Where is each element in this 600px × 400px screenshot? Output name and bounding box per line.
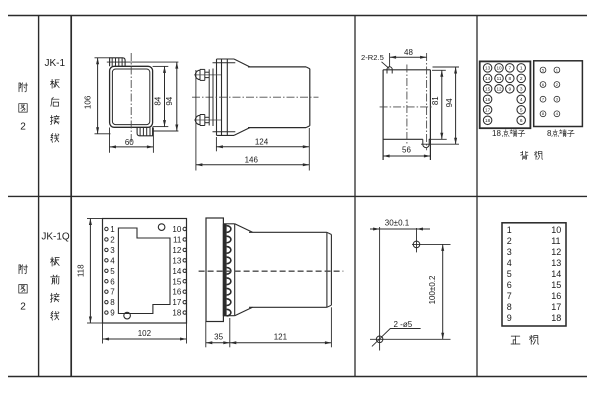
svg-text:18: 18 bbox=[485, 118, 491, 123]
svg-text:JK-1Q: JK-1Q bbox=[41, 231, 70, 242]
svg-text:8: 8 bbox=[547, 129, 552, 138]
svg-text:146: 146 bbox=[245, 156, 259, 165]
svg-text:94: 94 bbox=[445, 98, 454, 107]
svg-text:2: 2 bbox=[20, 121, 26, 132]
svg-text:2: 2 bbox=[110, 235, 115, 244]
svg-text:12: 12 bbox=[551, 247, 561, 257]
svg-text:18: 18 bbox=[492, 129, 501, 138]
svg-text:7: 7 bbox=[508, 66, 511, 72]
svg-text:18: 18 bbox=[172, 309, 181, 318]
svg-text:JK-1: JK-1 bbox=[45, 58, 66, 69]
svg-text:3: 3 bbox=[110, 246, 115, 255]
svg-text:5: 5 bbox=[110, 267, 115, 276]
svg-text:4: 4 bbox=[110, 256, 115, 265]
svg-text:6: 6 bbox=[507, 280, 512, 290]
svg-text:12: 12 bbox=[496, 86, 502, 91]
svg-text:15: 15 bbox=[485, 86, 491, 91]
svg-text:94: 94 bbox=[165, 96, 174, 105]
svg-text:84: 84 bbox=[154, 96, 163, 105]
svg-text:10: 10 bbox=[551, 225, 561, 235]
svg-text:9: 9 bbox=[110, 309, 115, 318]
svg-text:13: 13 bbox=[551, 258, 561, 268]
svg-text:2 -ø5: 2 -ø5 bbox=[394, 320, 413, 329]
svg-text:6: 6 bbox=[520, 118, 523, 124]
svg-text:16: 16 bbox=[172, 288, 181, 297]
svg-text:11: 11 bbox=[173, 235, 182, 244]
svg-text:2: 2 bbox=[507, 236, 512, 246]
svg-text:2-R2.5: 2-R2.5 bbox=[361, 53, 384, 62]
svg-text:1: 1 bbox=[110, 225, 115, 234]
svg-text:35: 35 bbox=[214, 333, 223, 342]
svg-text:10: 10 bbox=[496, 66, 502, 71]
svg-text:1: 1 bbox=[520, 66, 523, 72]
svg-text:2: 2 bbox=[520, 76, 523, 82]
svg-text:18: 18 bbox=[551, 313, 561, 323]
svg-text:9: 9 bbox=[507, 313, 512, 323]
svg-text:7: 7 bbox=[507, 291, 512, 301]
svg-text:16: 16 bbox=[485, 97, 491, 102]
svg-text:9: 9 bbox=[508, 87, 511, 93]
svg-text:5: 5 bbox=[507, 269, 512, 279]
svg-text:17: 17 bbox=[485, 107, 491, 112]
svg-text:1: 1 bbox=[507, 225, 512, 235]
svg-text:5: 5 bbox=[520, 108, 523, 114]
svg-text:17: 17 bbox=[172, 298, 181, 307]
svg-text:16: 16 bbox=[551, 291, 561, 301]
svg-text:102: 102 bbox=[138, 329, 152, 338]
svg-text:4: 4 bbox=[520, 97, 523, 103]
svg-text:7: 7 bbox=[110, 288, 115, 297]
svg-text:4: 4 bbox=[507, 258, 512, 268]
svg-text:118: 118 bbox=[77, 264, 86, 277]
svg-text:56: 56 bbox=[402, 146, 411, 155]
svg-text:14: 14 bbox=[485, 76, 491, 81]
svg-text:13: 13 bbox=[485, 66, 491, 71]
svg-text:15: 15 bbox=[551, 280, 561, 290]
svg-text:17: 17 bbox=[551, 302, 561, 312]
svg-text:2: 2 bbox=[20, 301, 26, 312]
svg-text:3: 3 bbox=[520, 87, 523, 93]
svg-text:14: 14 bbox=[551, 269, 561, 279]
svg-text:6: 6 bbox=[110, 277, 115, 286]
svg-text:8: 8 bbox=[508, 76, 511, 82]
svg-text:100±0.2: 100±0.2 bbox=[428, 275, 437, 304]
svg-text:8: 8 bbox=[110, 298, 115, 307]
svg-text:106: 106 bbox=[84, 95, 93, 109]
svg-text:13: 13 bbox=[172, 256, 181, 265]
svg-text:48: 48 bbox=[404, 48, 413, 57]
svg-text:11: 11 bbox=[551, 236, 560, 246]
svg-text:8: 8 bbox=[507, 302, 512, 312]
svg-text:3: 3 bbox=[507, 247, 512, 257]
svg-text:14: 14 bbox=[172, 267, 181, 276]
svg-text:12: 12 bbox=[172, 246, 181, 255]
svg-text:60: 60 bbox=[125, 138, 134, 147]
svg-text:81: 81 bbox=[431, 96, 440, 105]
svg-text:15: 15 bbox=[172, 277, 181, 286]
svg-text:124: 124 bbox=[255, 138, 269, 147]
svg-text:30±0.1: 30±0.1 bbox=[385, 219, 410, 228]
svg-text:11: 11 bbox=[497, 76, 502, 81]
svg-text:121: 121 bbox=[274, 333, 288, 342]
svg-text:10: 10 bbox=[172, 225, 181, 234]
